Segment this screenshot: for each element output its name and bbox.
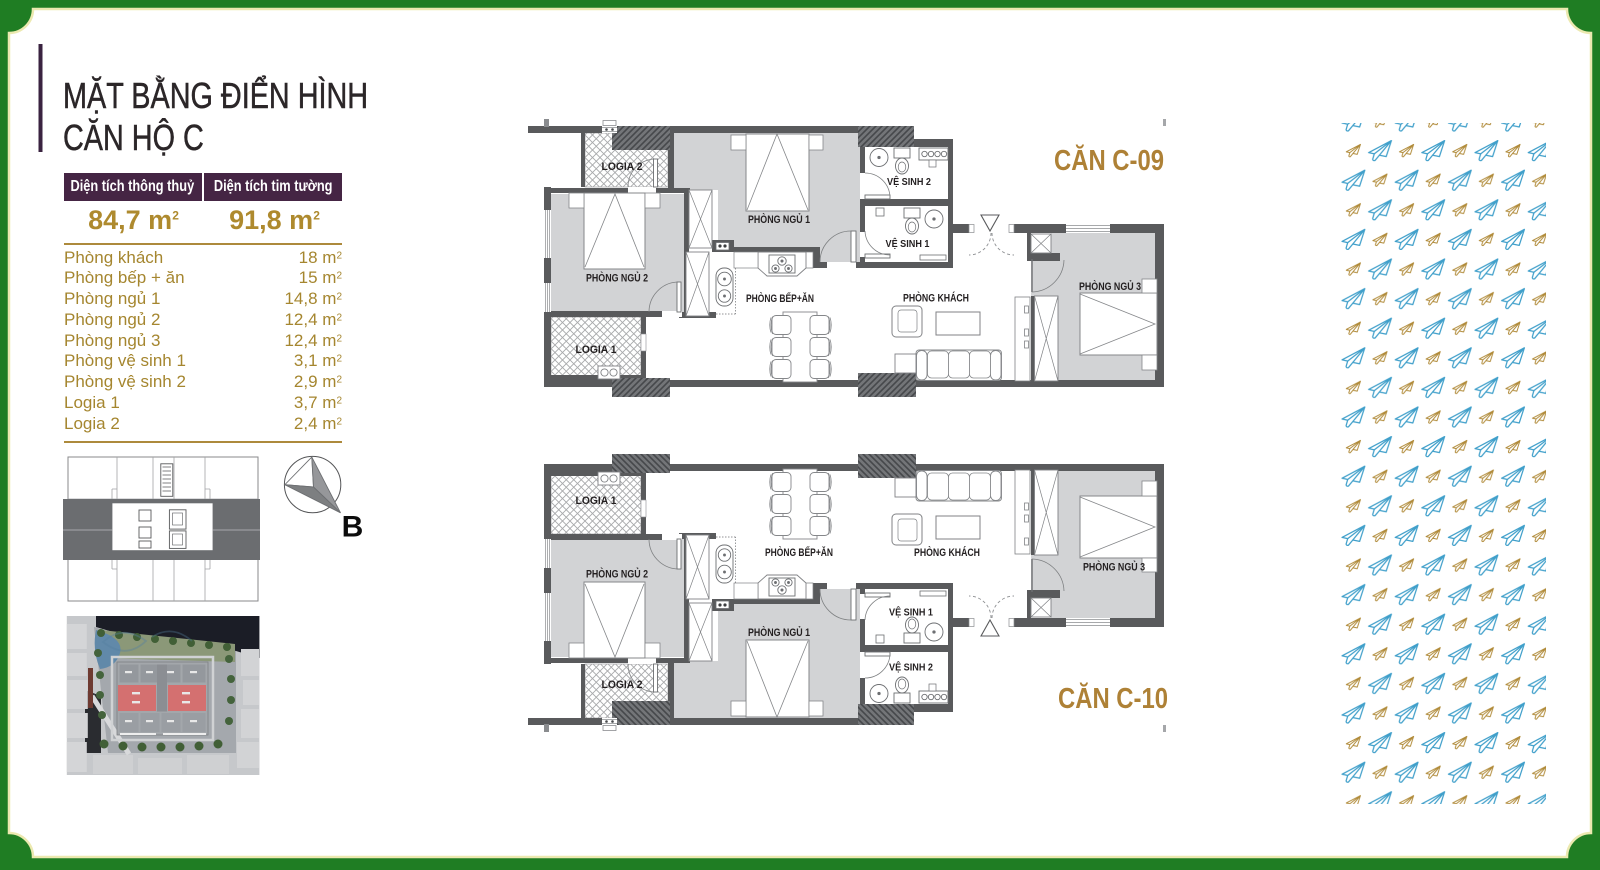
svg-text:PHÒNG NGỦ 1: PHÒNG NGỦ 1	[748, 213, 810, 226]
svg-text:PHÒNG KHÁCH: PHÒNG KHÁCH	[914, 546, 980, 559]
svg-text:PHÒNG BẾP+ĂN: PHÒNG BẾP+ĂN	[746, 292, 814, 305]
svg-text:VỆ SINH 1: VỆ SINH 1	[889, 606, 933, 619]
svg-text:PHÒNG KHÁCH: PHÒNG KHÁCH	[903, 292, 969, 305]
svg-text:PHÒNG NGỦ 2: PHÒNG NGỦ 2	[586, 272, 648, 285]
svg-text:LOGIA 1: LOGIA 1	[576, 495, 617, 507]
svg-text:VỆ SINH 1: VỆ SINH 1	[886, 237, 930, 250]
svg-text:PHÒNG BẾP+ĂN: PHÒNG BẾP+ĂN	[765, 546, 833, 559]
svg-text:PHÒNG NGỦ 3: PHÒNG NGỦ 3	[1083, 561, 1145, 574]
svg-text:LOGIA 2: LOGIA 2	[602, 679, 643, 691]
svg-text:VỆ SINH 2: VỆ SINH 2	[889, 661, 933, 674]
svg-text:B: B	[342, 511, 364, 544]
svg-text:VỆ SINH 2: VỆ SINH 2	[887, 175, 931, 188]
svg-text:PHÒNG NGỦ 1: PHÒNG NGỦ 1	[748, 626, 810, 639]
svg-text:LOGIA 1: LOGIA 1	[576, 344, 617, 356]
svg-text:PHÒNG NGỦ 2: PHÒNG NGỦ 2	[586, 568, 648, 581]
svg-text:CĂN C-09: CĂN C-09	[1054, 145, 1164, 177]
svg-text:CĂN C-10: CĂN C-10	[1058, 683, 1168, 715]
svg-text:PHÒNG NGỦ 3: PHÒNG NGỦ 3	[1079, 280, 1141, 293]
svg-text:LOGIA 2: LOGIA 2	[602, 161, 643, 173]
